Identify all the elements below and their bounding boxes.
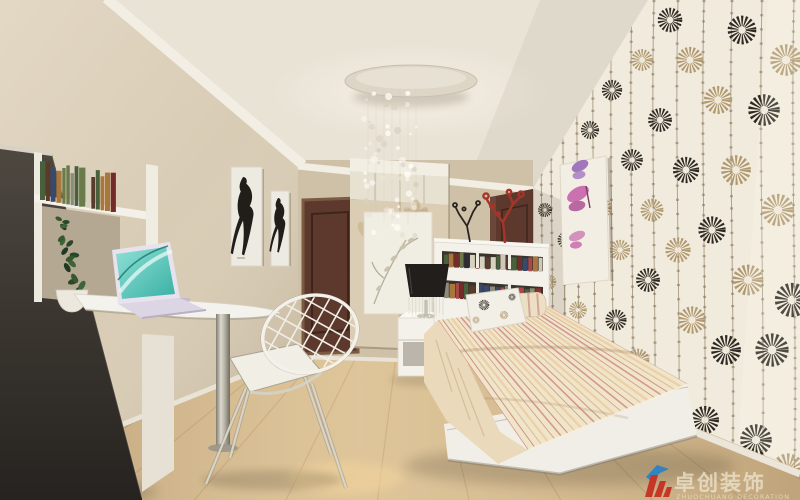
art-print-2 — [269, 191, 290, 266]
desk-side-panel — [142, 334, 174, 492]
art-print-1 — [231, 167, 263, 266]
scene-canvas: 卓创装饰 ZHUOCHUANG DECORATION — [0, 0, 800, 500]
bedroom-render: 卓创装饰 ZHUOCHUANG DECORATION — [0, 0, 800, 500]
watermark-text-en: ZHUOCHUANG DECORATION — [676, 493, 790, 500]
desk-leg — [216, 314, 230, 446]
butterfly-panel — [560, 156, 612, 285]
watermark-text-cn: 卓创装饰 — [674, 471, 766, 495]
